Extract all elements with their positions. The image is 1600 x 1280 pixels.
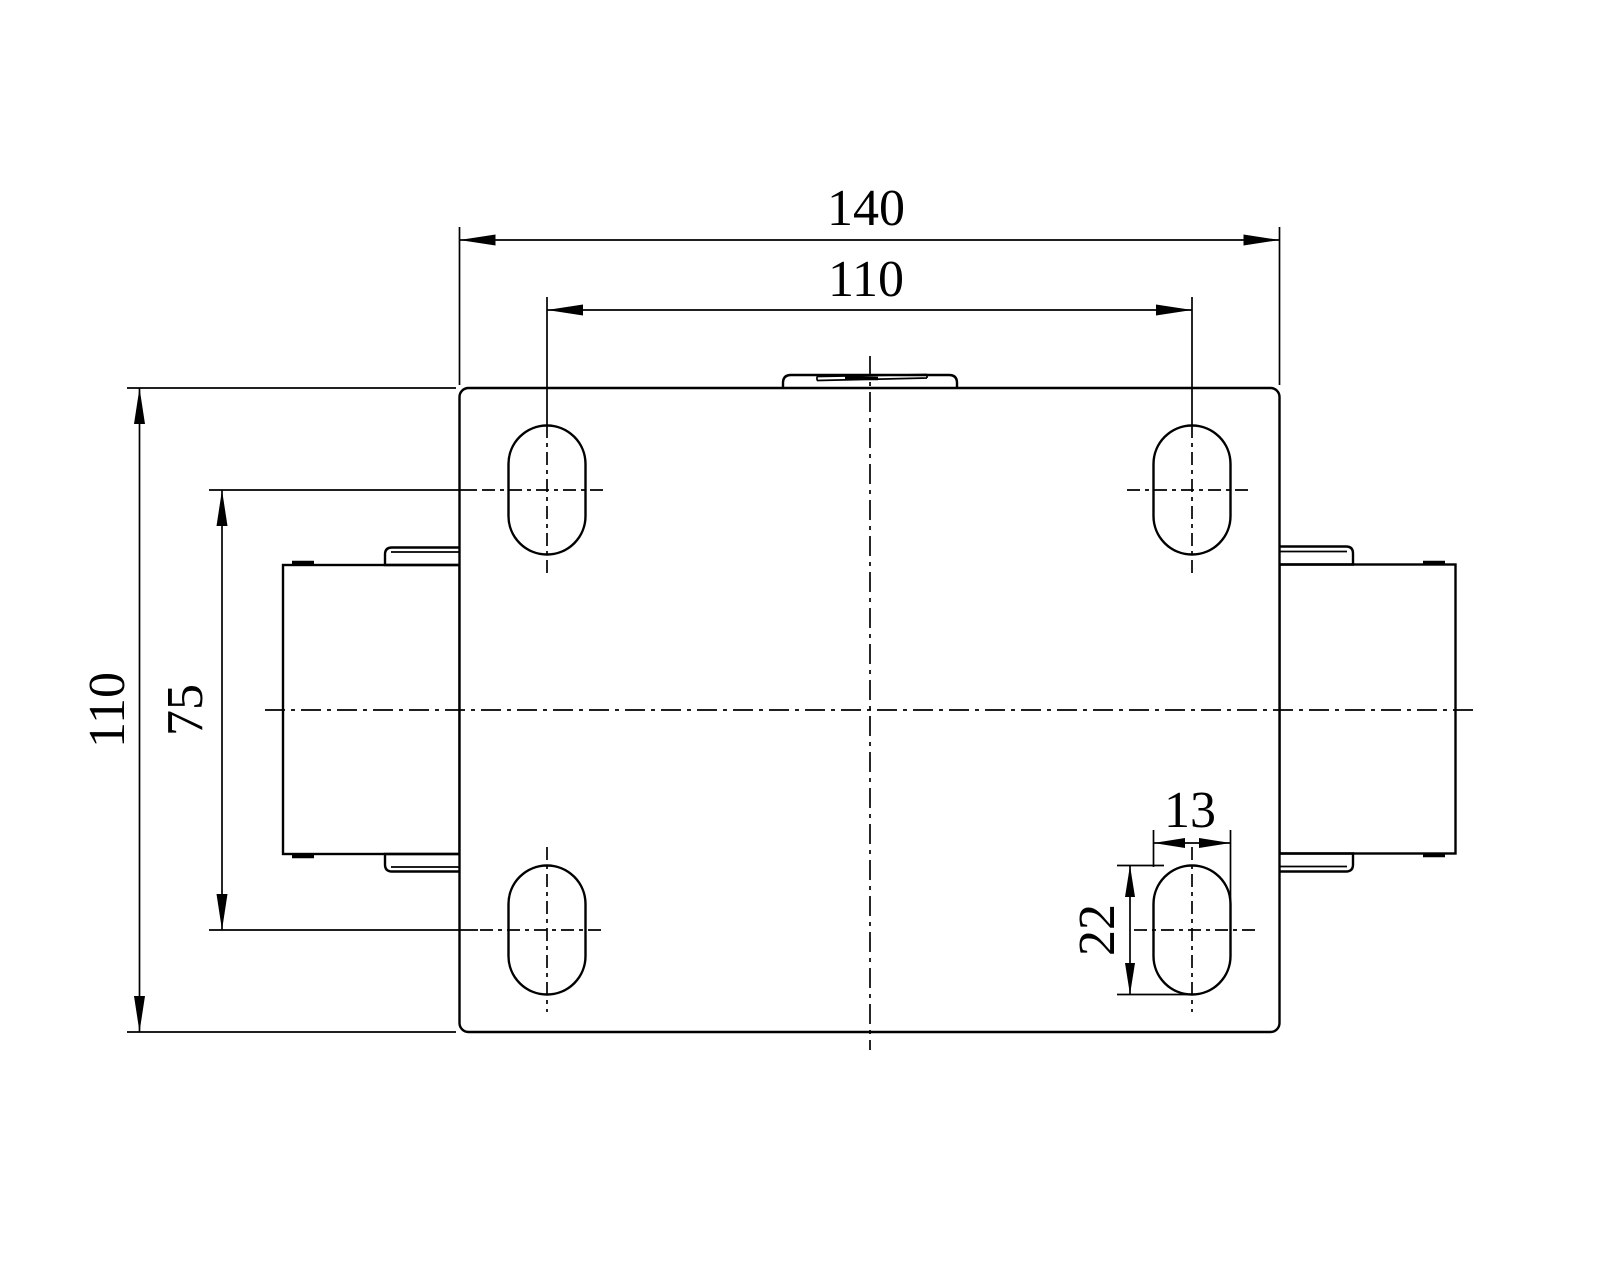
dim-hole-pitch-y-label: 75 (157, 684, 214, 736)
engineering-drawing-svg: 140 110 110 75 (0, 0, 1600, 1280)
dim-overall-depth-arrow-top (134, 388, 145, 424)
wheel-right (1280, 547, 1456, 872)
dim-slot-length-label: 22 (1069, 904, 1126, 956)
dim-overall-depth-arrow-bottom (134, 996, 145, 1032)
dim-overall-width-arrow-left (460, 235, 496, 246)
dim-overall-depth-label: 110 (79, 672, 136, 748)
wheel-right-hub-tab-bottom (1280, 854, 1354, 872)
dim-overall-width-arrow-right (1244, 235, 1280, 246)
dim-slot-width-label: 13 (1164, 782, 1216, 839)
dim-hole-pitch-x-arrow-left (547, 305, 583, 316)
dim-hole-pitch-y-arrow-top (217, 490, 228, 526)
dim-overall-width-label: 140 (827, 180, 905, 237)
wheel-right-hub-tab-top (1280, 547, 1354, 565)
drawing-canvas: 140 110 110 75 (0, 0, 1600, 1280)
swivel-boss-blade-core (845, 378, 878, 379)
dim-hole-pitch-x-label: 110 (828, 251, 904, 308)
wheel-left-hub-tab-bottom (385, 854, 460, 872)
dim-hole-pitch-y-arrow-bottom (217, 894, 228, 930)
wheel-right-outline (1280, 565, 1456, 854)
dim-hole-pitch-x-arrow-right (1156, 305, 1192, 316)
wheel-left-hub-tab-top (385, 548, 460, 566)
